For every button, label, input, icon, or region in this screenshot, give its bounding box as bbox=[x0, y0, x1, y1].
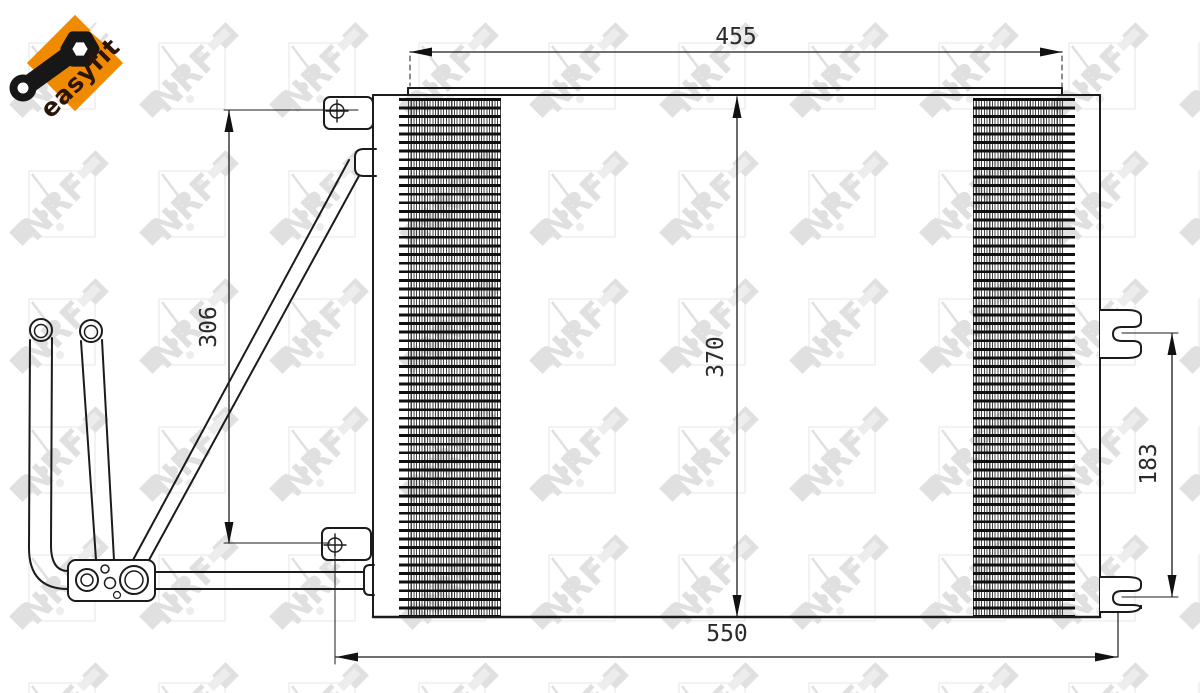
dimension-label: 455 bbox=[715, 24, 757, 50]
dimension-core-height: 370 bbox=[703, 96, 742, 617]
bottom-left-mounting-bracket bbox=[322, 528, 371, 560]
top-left-mounting-bracket bbox=[324, 97, 373, 129]
dimension-label: 306 bbox=[196, 306, 222, 348]
condenser-drawing: 455 306 370 183 bbox=[0, 0, 1200, 693]
right-mounting-tab-top bbox=[1100, 310, 1141, 358]
dimension-label: 550 bbox=[706, 621, 748, 647]
diagonal-pipe bbox=[133, 149, 376, 560]
dimension-top-width: 455 bbox=[410, 24, 1062, 94]
dimension-label: 370 bbox=[703, 336, 729, 378]
dimension-bottom-width: 550 bbox=[335, 552, 1117, 664]
horizontal-pipe bbox=[155, 565, 374, 595]
pipe-end-ring-left bbox=[30, 319, 52, 341]
connector-block bbox=[68, 560, 155, 601]
pipe-end-ring-right bbox=[80, 320, 102, 342]
technical-drawing-canvas: NRFNRFNRFNRFNRFNRFNRFNRFNRFNRFNRFNRFNRFN… bbox=[0, 0, 1200, 693]
dimension-right-bracket-spacing: 183 bbox=[1122, 333, 1178, 597]
easyfit-badge: easyfit bbox=[0, 0, 170, 135]
right-mounting-tab-bottom bbox=[1100, 577, 1141, 657]
dimension-label: 183 bbox=[1136, 443, 1162, 485]
